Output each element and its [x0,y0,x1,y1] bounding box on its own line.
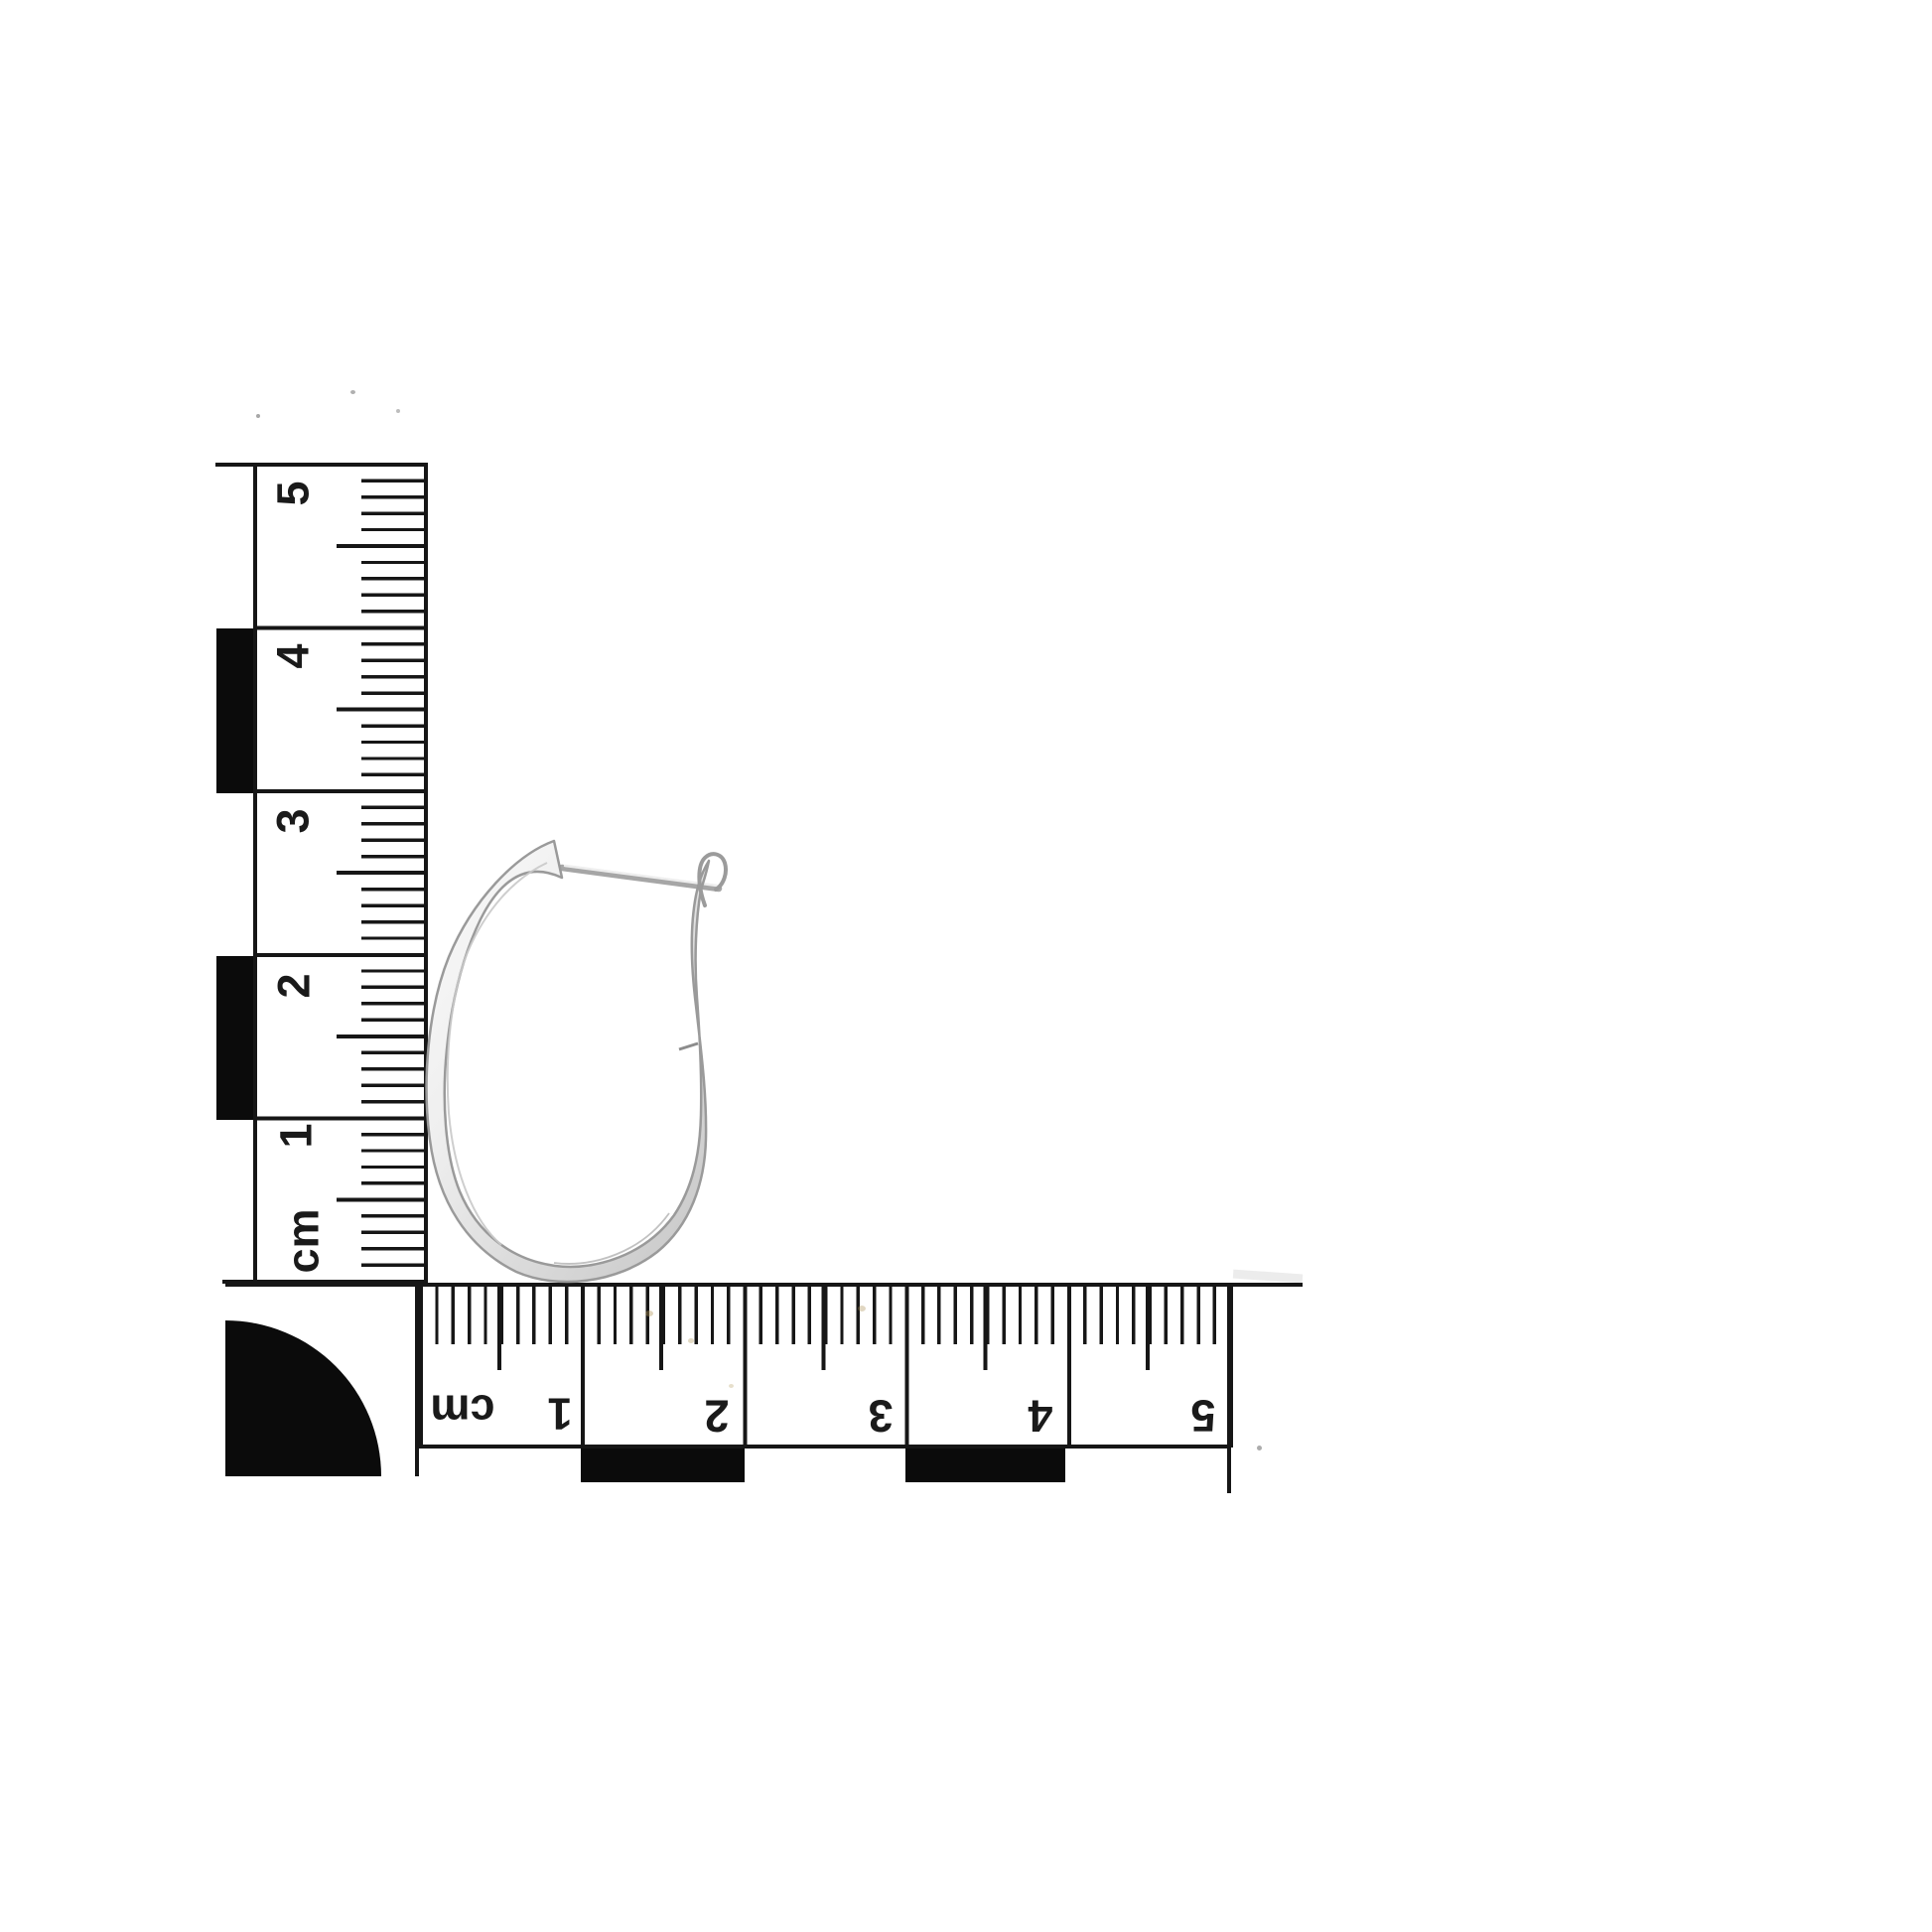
earring-bevel-highlight [448,863,547,1245]
dust-speck [1257,1446,1262,1450]
earring-pin [562,868,719,889]
paper-speck [645,1311,653,1316]
dust-speck [396,409,400,413]
earring-pin-highlight [565,866,717,886]
paper-speck [729,1384,734,1388]
earring-hinge-notch [679,1043,698,1049]
dust-speck [256,414,260,418]
photo-canvas: 5 4 3 2 1 cm cm 1 2 3 4 5 [0,0,1932,1932]
hoop-earring-photo [0,0,1932,1932]
paper-speck [688,1338,694,1343]
dust-speck [350,390,355,394]
paper-speck [858,1306,866,1311]
